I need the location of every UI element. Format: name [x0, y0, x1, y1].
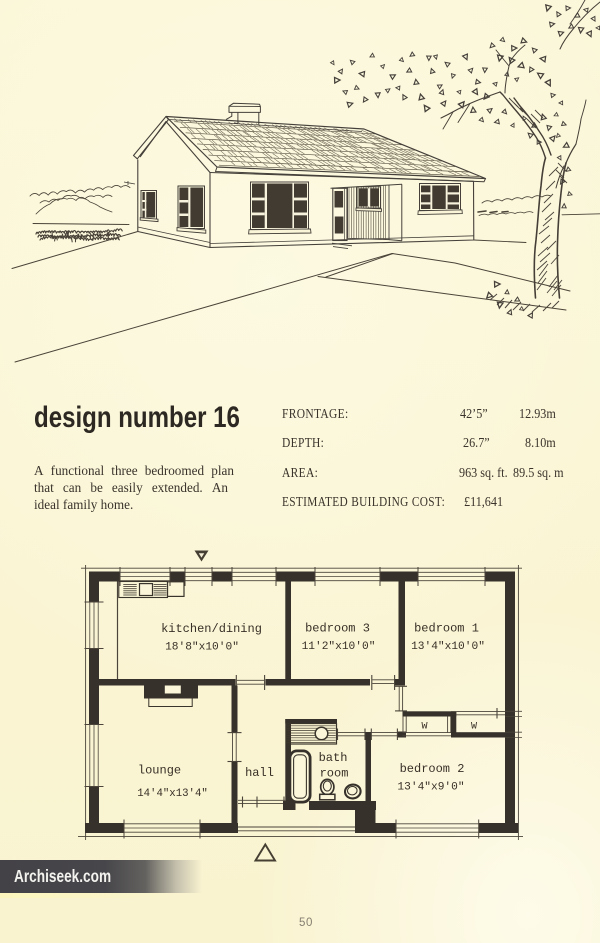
svg-text:bath: bath [319, 751, 348, 765]
svg-text:room: room [320, 767, 349, 781]
svg-text:hall: hall [245, 766, 274, 780]
svg-text:11'2"x10'0": 11'2"x10'0" [302, 641, 376, 653]
svg-text:bedroom 1: bedroom 1 [414, 622, 479, 636]
svg-text:13'4"x9'0": 13'4"x9'0" [397, 782, 464, 794]
svg-text:13'4"x10'0": 13'4"x10'0" [411, 641, 485, 653]
svg-text:bedroom 2: bedroom 2 [400, 762, 465, 776]
svg-text:bedroom 3: bedroom 3 [305, 622, 370, 636]
svg-text:W: W [421, 722, 427, 733]
svg-text:kitchen/dining: kitchen/dining [161, 622, 262, 636]
svg-text:W: W [471, 722, 477, 733]
svg-text:14'4"x13'4": 14'4"x13'4" [137, 788, 208, 800]
svg-text:18'8"x10'0": 18'8"x10'0" [165, 642, 239, 654]
svg-text:lounge: lounge [138, 764, 181, 778]
